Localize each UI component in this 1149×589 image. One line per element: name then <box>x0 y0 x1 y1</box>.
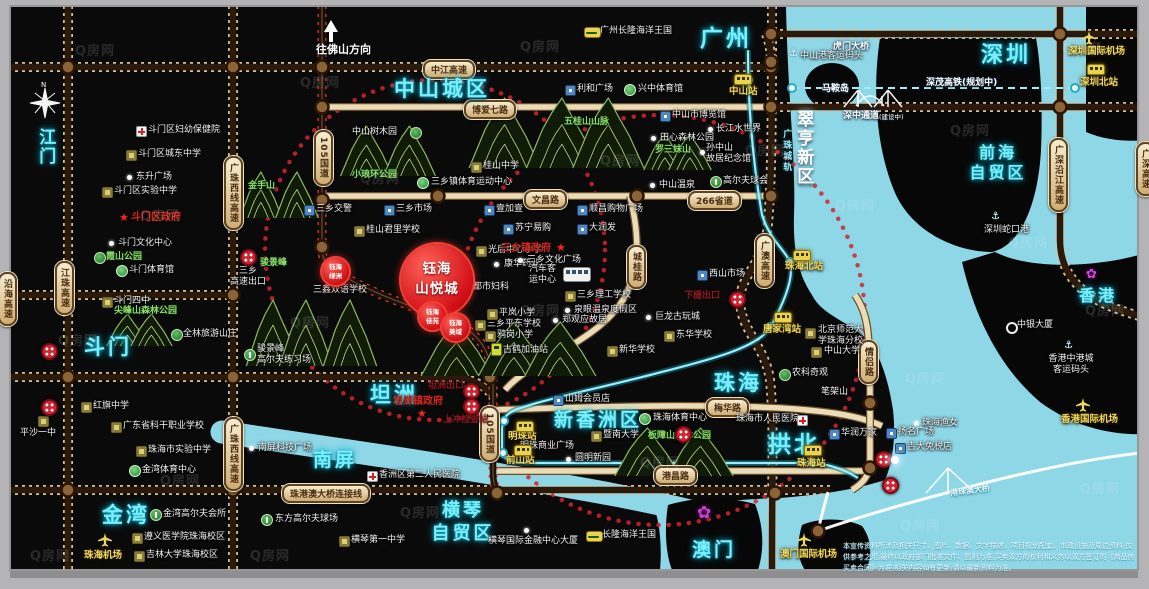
project-lvzhou: 钰海 绿洲 <box>322 258 349 285</box>
map-background: N <box>0 0 1149 589</box>
location-map: N 江门斗门金湾南屏坦洲中山城区广州深圳翠亨新区前海 自贸区新香洲区珠海拱北横琴… <box>0 0 1149 589</box>
project-meiyu: 钰海 美域 <box>442 314 469 341</box>
macau-land <box>666 498 762 570</box>
svg-text:N: N <box>41 81 46 89</box>
